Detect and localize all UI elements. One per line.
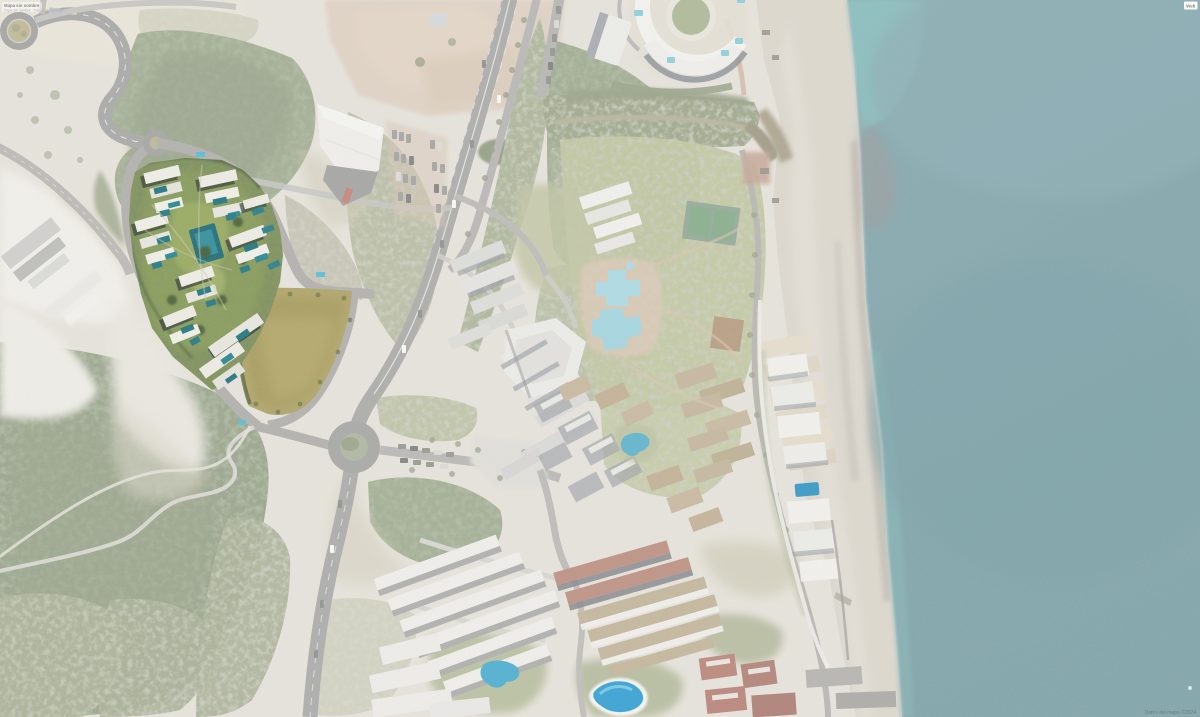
svg-text:Mapa sin nombre: Mapa sin nombre: [4, 3, 40, 8]
svg-text:Web: Web: [1186, 4, 1196, 9]
svg-text:Datos del mapa ©2024: Datos del mapa ©2024: [1145, 709, 1196, 716]
svg-text:Capa sin nombre · Todos los ca: Capa sin nombre · Todos los cambios: [4, 9, 63, 13]
